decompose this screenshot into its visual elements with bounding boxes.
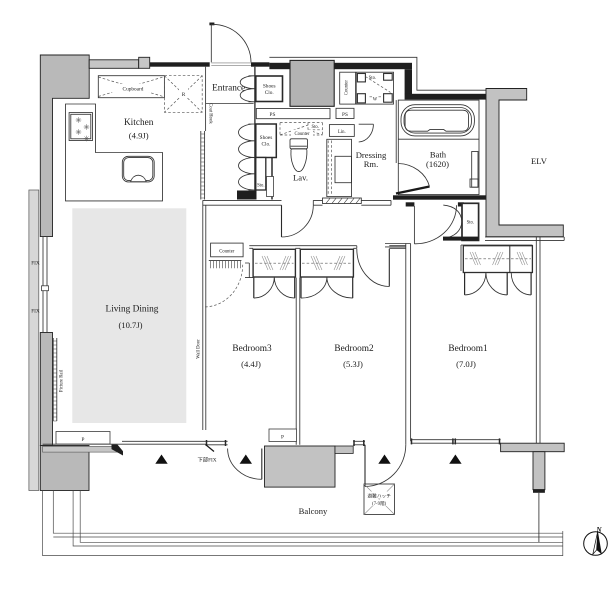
svg-text:(7-9階): (7-9階) [372, 500, 386, 507]
svg-text:PS: PS [270, 112, 276, 118]
svg-text:Balcony: Balcony [299, 506, 328, 516]
svg-text:FIX: FIX [31, 261, 40, 267]
svg-text:(5.3J): (5.3J) [343, 359, 363, 369]
svg-text:Counter: Counter [219, 250, 235, 255]
svg-text:R: R [182, 92, 186, 98]
svg-text:Sto.: Sto. [369, 76, 376, 81]
svg-text:Counter: Counter [294, 132, 310, 137]
svg-text:Cupboard: Cupboard [123, 87, 144, 93]
svg-text:Entrance: Entrance [212, 84, 245, 94]
svg-text:Coat Hook: Coat Hook [208, 103, 213, 124]
svg-text:Sto.: Sto. [257, 184, 264, 189]
svg-text:Lav.: Lav. [293, 173, 308, 183]
svg-text:W: W [373, 97, 378, 102]
svg-text:Counter: Counter [345, 80, 350, 96]
svg-text:Living Dining: Living Dining [106, 305, 159, 315]
svg-text:Lin.: Lin. [338, 130, 346, 135]
svg-text:(1620): (1620) [426, 159, 449, 169]
svg-text:Kitchen: Kitchen [124, 118, 154, 128]
svg-text:Shoes: Shoes [263, 83, 276, 89]
svg-text:PS: PS [342, 112, 348, 118]
svg-text:Bedroom2: Bedroom2 [334, 344, 374, 354]
svg-text:Wall Door: Wall Door [197, 339, 202, 359]
svg-text:Bedroom1: Bedroom1 [448, 344, 488, 354]
svg-text:避難ハッチ: 避難ハッチ [367, 493, 391, 500]
svg-text:ELV: ELV [531, 156, 548, 166]
svg-text:(4.4J): (4.4J) [241, 359, 261, 369]
svg-text:Sto.: Sto. [311, 125, 318, 130]
svg-text:Bedroom3: Bedroom3 [232, 344, 272, 354]
svg-text:(7.0J): (7.0J) [456, 359, 476, 369]
svg-text:Shoes: Shoes [260, 135, 273, 141]
svg-text:Clo.: Clo. [265, 90, 274, 96]
svg-text:P: P [281, 434, 284, 440]
svg-text:Rm.: Rm. [364, 159, 379, 169]
svg-text:(10.7J): (10.7J) [118, 320, 142, 330]
svg-text:P: P [82, 437, 85, 443]
svg-text:N: N [595, 525, 602, 534]
svg-text:FIX: FIX [31, 309, 40, 315]
svg-text:Picture Rail: Picture Rail [60, 369, 65, 392]
svg-text:Clo.: Clo. [262, 142, 271, 148]
svg-text:Sto.: Sto. [467, 221, 474, 226]
svg-text:(4.9J): (4.9J) [129, 131, 149, 141]
svg-text:下部FIX: 下部FIX [198, 456, 217, 464]
